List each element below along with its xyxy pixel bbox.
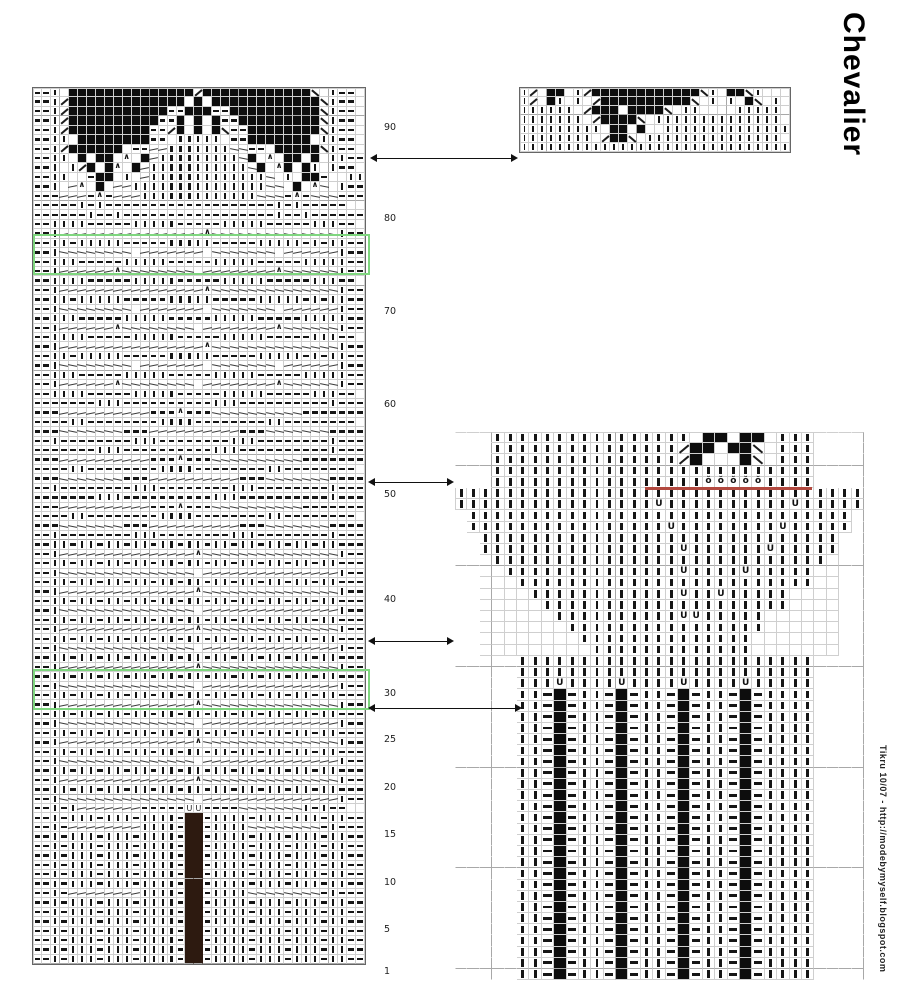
chart-cell (666, 689, 678, 700)
chart-cell (239, 154, 248, 163)
chart-cell (42, 352, 51, 361)
chart-cell (159, 719, 168, 728)
chart-cell (221, 738, 230, 747)
chart-cell (266, 578, 275, 587)
chart-cell (33, 371, 42, 380)
chart-cell (302, 399, 311, 408)
chart-cell (338, 503, 347, 512)
chart-cell (542, 656, 554, 667)
chart-cell (591, 734, 603, 745)
chart-cell (96, 295, 105, 304)
chart-cell (141, 908, 150, 917)
chart-cell (275, 927, 284, 936)
chart-cell (554, 723, 566, 734)
chart-cell (60, 107, 69, 116)
chart-cell (839, 443, 851, 454)
chart-cell (60, 173, 69, 182)
chart-cell (604, 633, 616, 644)
chart-cell (347, 88, 356, 97)
chart-cell (123, 371, 132, 380)
chart-cell (827, 544, 839, 555)
chart-cell (141, 766, 150, 775)
chart-cell (814, 522, 826, 533)
chart-cell (752, 555, 764, 566)
chart-cell (653, 689, 665, 700)
chart-cell (666, 678, 678, 689)
chart-cell (203, 851, 212, 860)
chart-row (520, 125, 790, 134)
chart-cell (87, 399, 96, 408)
chart-cell (150, 757, 159, 766)
chart-cell (266, 408, 275, 417)
chart-cell (203, 484, 212, 493)
chart-cell (105, 220, 114, 229)
chart-cell (123, 220, 132, 229)
chart-cell (827, 801, 839, 812)
chart-cell (320, 437, 329, 446)
chart-cell (777, 812, 789, 823)
chart-cell (505, 510, 517, 521)
chart-cell (159, 192, 168, 201)
chart-cell (347, 804, 356, 813)
chart-cell (239, 173, 248, 182)
chart-cell (221, 616, 230, 625)
chart-cell (87, 210, 96, 219)
chart-cell (42, 361, 51, 370)
chart-cell (33, 503, 42, 512)
chart-cell (177, 616, 186, 625)
chart-cell (96, 719, 105, 728)
chart-cell (275, 201, 284, 210)
chart-cell (827, 477, 839, 488)
chart-cell (302, 955, 311, 964)
chart-cell (356, 390, 365, 399)
chart-cell (114, 851, 123, 860)
chart-cell (212, 908, 221, 917)
chart-cell (51, 182, 60, 191)
chart-cell (248, 88, 257, 97)
chart-cell (275, 437, 284, 446)
chart-cell (347, 107, 356, 116)
chart-cell (567, 723, 579, 734)
chart-cell (653, 633, 665, 644)
chart-cell (221, 785, 230, 794)
chart-cell (839, 454, 851, 465)
chart-cell (194, 107, 203, 116)
chart-cell (230, 88, 239, 97)
chart-cell (455, 835, 467, 846)
chart-cell (329, 908, 338, 917)
chart-cell (347, 437, 356, 446)
chart-cell (239, 437, 248, 446)
chart-cell (641, 667, 653, 678)
chart-cell (177, 936, 186, 945)
chart-cell (168, 804, 177, 813)
chart-row (33, 192, 365, 201)
chart-cell (320, 427, 329, 436)
chart-cell (814, 790, 826, 801)
chart-cell (678, 533, 690, 544)
chart-cell (628, 768, 640, 779)
chart-cell (132, 521, 141, 530)
chart-cell (203, 107, 212, 116)
chart-cell (60, 97, 69, 106)
chart-cell (610, 115, 619, 124)
chart-cell (212, 437, 221, 446)
chart-cell (320, 97, 329, 106)
chart-cell (610, 97, 619, 106)
chart-cell (754, 134, 763, 143)
chart-cell (248, 352, 257, 361)
chart-cell (752, 566, 764, 577)
chart-cell (185, 634, 194, 643)
chart-cell (329, 823, 338, 832)
chart-cell (604, 824, 616, 835)
chart-cell (177, 97, 186, 106)
chart-cell (302, 879, 311, 888)
chart-cell (467, 499, 479, 510)
chart-cell (284, 286, 293, 295)
chart-cell (529, 824, 541, 835)
chart-cell (302, 145, 311, 154)
chart-cell (284, 295, 293, 304)
chart-cell (673, 106, 682, 115)
chart-cell (347, 587, 356, 596)
chart-cell (492, 577, 504, 588)
chart-cell (347, 785, 356, 794)
chart-cell (69, 644, 78, 653)
chart-cell (338, 493, 347, 502)
chart-cell (529, 115, 538, 124)
chart-cell (203, 88, 212, 97)
chart-cell (159, 135, 168, 144)
chart-cell (212, 851, 221, 860)
chart-cell (538, 88, 547, 97)
chart-cell (529, 510, 541, 521)
chart-cell (703, 600, 715, 611)
chart-cell (42, 390, 51, 399)
chart-cell (159, 832, 168, 841)
chart-cell (105, 861, 114, 870)
chart-cell (51, 418, 60, 427)
chart-cell (814, 499, 826, 510)
chart-cell (293, 390, 302, 399)
chart-cell (141, 813, 150, 822)
chart-cell (51, 936, 60, 945)
chart-cell (123, 352, 132, 361)
chart-cell (230, 512, 239, 521)
chart-cell (529, 589, 541, 600)
chart-cell (703, 689, 715, 700)
chart-cell (329, 597, 338, 606)
chart-cell (320, 832, 329, 841)
chart-cell (517, 689, 529, 700)
chart-cell (177, 832, 186, 841)
chart-cell (814, 466, 826, 477)
chart-row (33, 437, 365, 446)
chart-cell (51, 220, 60, 229)
chart-cell (763, 125, 772, 134)
chart-cell (248, 738, 257, 747)
chart-cell (33, 192, 42, 201)
chart-cell (230, 917, 239, 926)
chart-cell (177, 757, 186, 766)
chart-cell (311, 587, 320, 596)
chart-cell (96, 559, 105, 568)
chart-cell (827, 622, 839, 633)
chart-cell (709, 143, 718, 152)
chart-row (33, 719, 365, 728)
chart-cell (185, 107, 194, 116)
chart-cell (159, 126, 168, 135)
chart-cell (839, 645, 851, 656)
chart-cell (302, 851, 311, 860)
chart-cell (529, 667, 541, 678)
chart-cell (311, 795, 320, 804)
chart-row (455, 667, 864, 678)
chart-cell (33, 587, 42, 596)
chart-cell (123, 729, 132, 738)
chart-cell (96, 861, 105, 870)
chart-cell (839, 522, 851, 533)
chart-cell (302, 625, 311, 634)
chart-cell (51, 276, 60, 285)
chart-cell (150, 465, 159, 474)
chart-cell (329, 342, 338, 351)
chart-cell (266, 748, 275, 757)
chart-row (455, 611, 864, 622)
chart-cell (221, 823, 230, 832)
chart-cell (302, 832, 311, 841)
chart-cell (347, 738, 356, 747)
chart-cell (168, 936, 177, 945)
chart-cell (150, 437, 159, 446)
chart-cell (591, 633, 603, 644)
chart-cell (666, 633, 678, 644)
chart-cell (168, 295, 177, 304)
chart-cell (87, 512, 96, 521)
chart-cell (736, 125, 745, 134)
chart-cell (715, 622, 727, 633)
chart-cell (185, 597, 194, 606)
chart-cell (455, 544, 467, 555)
chart-cell (248, 653, 257, 662)
chart-cell (492, 533, 504, 544)
chart-cell (814, 678, 826, 689)
chart-cell (239, 955, 248, 964)
chart-cell (302, 474, 311, 483)
chart-cell (311, 616, 320, 625)
chart-cell (69, 766, 78, 775)
chart-cell (690, 745, 702, 756)
chart-row (455, 712, 864, 723)
chart-cell (678, 645, 690, 656)
chart-cell (42, 97, 51, 106)
chart-cell (641, 633, 653, 644)
chart-cell (150, 408, 159, 417)
chart-cell (114, 418, 123, 427)
chart-cell (311, 437, 320, 446)
chart-cell (96, 390, 105, 399)
chart-cell (96, 210, 105, 219)
chart-cell (78, 145, 87, 154)
chart-cell (275, 210, 284, 219)
chart-cell (591, 768, 603, 779)
chart-cell (740, 667, 752, 678)
chart-cell (266, 512, 275, 521)
chart-cell (703, 611, 715, 622)
chart-cell (455, 656, 467, 667)
chart-cell (51, 295, 60, 304)
chart-cell (293, 889, 302, 898)
chart-cell (338, 107, 347, 116)
chart-cell (682, 88, 691, 97)
chart-cell (715, 443, 727, 454)
chart-cell (542, 622, 554, 633)
chart-cell (284, 587, 293, 596)
chart-cell (467, 656, 479, 667)
chart-cell (628, 577, 640, 588)
chart-cell (320, 559, 329, 568)
chart-cell (284, 634, 293, 643)
chart-cell (827, 566, 839, 577)
chart-cell (284, 955, 293, 964)
chart-cell (275, 474, 284, 483)
chart-cell (194, 851, 203, 860)
chart-cell (338, 955, 347, 964)
chart-cell (141, 484, 150, 493)
chart-cell (492, 566, 504, 577)
chart-cell (839, 667, 851, 678)
chart-cell (347, 182, 356, 191)
chart-cell (168, 418, 177, 427)
chart-cell (852, 443, 864, 454)
chart-cell (765, 689, 777, 700)
chart-cell (320, 710, 329, 719)
chart-cell (293, 757, 302, 766)
chart-cell (248, 276, 257, 285)
chart-cell (168, 889, 177, 898)
chart-cell (87, 107, 96, 116)
chart-cell (96, 710, 105, 719)
chart-cell (777, 499, 789, 510)
chart-cell (347, 908, 356, 917)
chart-cell (752, 656, 764, 667)
chart-cell (239, 145, 248, 154)
chart-cell (329, 427, 338, 436)
chart-cell (293, 804, 302, 813)
chart-cell (212, 738, 221, 747)
chart-cell (51, 729, 60, 738)
chart-cell (114, 97, 123, 106)
chart-cell (763, 88, 772, 97)
chart-cell (293, 738, 302, 747)
chart-cell (709, 88, 718, 97)
chart-cell (814, 734, 826, 745)
chart-cell (591, 589, 603, 600)
chart-cell (266, 870, 275, 879)
chart-cell (678, 589, 690, 600)
chart-cell (96, 757, 105, 766)
chart-cell (329, 192, 338, 201)
chart-cell (257, 889, 266, 898)
chart-cell (60, 842, 69, 851)
chart-cell (338, 408, 347, 417)
chart-cell (33, 625, 42, 634)
chart-cell (740, 566, 752, 577)
chart-cell (839, 499, 851, 510)
chart-cell (467, 734, 479, 745)
chart-cell (60, 484, 69, 493)
chart-cell (666, 812, 678, 823)
chart-cell (194, 785, 203, 794)
chart-cell (168, 455, 177, 464)
chart-cell (141, 540, 150, 549)
chart-cell (203, 870, 212, 879)
chart-cell (356, 606, 365, 615)
chart-cell (239, 879, 248, 888)
chart-cell (212, 286, 221, 295)
chart-cell (150, 210, 159, 219)
chart-cell (185, 729, 194, 738)
chart-cell (542, 466, 554, 477)
chart-cell (852, 801, 864, 812)
chart-cell (96, 116, 105, 125)
chart-cell (212, 390, 221, 399)
chart-row (455, 533, 864, 544)
chart-cell (554, 577, 566, 588)
chart-cell (579, 712, 591, 723)
chart-cell (529, 443, 541, 454)
chart-cell (132, 804, 141, 813)
chart-cell (320, 295, 329, 304)
chart-cell (591, 432, 603, 443)
chart-cell (480, 577, 492, 588)
chart-cell (141, 455, 150, 464)
chart-cell (529, 134, 538, 143)
chart-cell (239, 427, 248, 436)
chart-cell (790, 812, 802, 823)
chart-cell (505, 544, 517, 555)
chart-cell (517, 611, 529, 622)
chart-cell (150, 182, 159, 191)
chart-cell (653, 466, 665, 477)
chart-cell (641, 701, 653, 712)
chart-cell (604, 432, 616, 443)
chart-cell (752, 756, 764, 767)
chart-cell (257, 465, 266, 474)
chart-cell (42, 192, 51, 201)
chart-cell (212, 116, 221, 125)
chart-cell (480, 712, 492, 723)
chart-cell (212, 578, 221, 587)
chart-cell (42, 474, 51, 483)
chart-cell (168, 97, 177, 106)
chart-cell (177, 823, 186, 832)
chart-cell (320, 606, 329, 615)
chart-cell (123, 832, 132, 841)
chart-cell (347, 446, 356, 455)
chart-cell (230, 908, 239, 917)
chart-cell (765, 600, 777, 611)
chart-cell (703, 454, 715, 465)
chart-cell (293, 474, 302, 483)
chart-cell (159, 512, 168, 521)
chart-cell (356, 870, 365, 879)
chart-cell (212, 97, 221, 106)
chart-cell (168, 512, 177, 521)
chart-cell (542, 443, 554, 454)
